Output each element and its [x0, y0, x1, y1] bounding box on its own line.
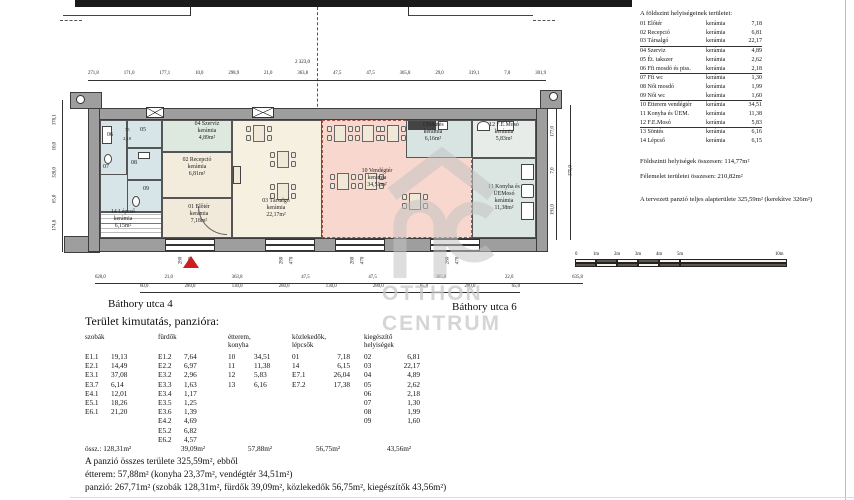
wall-left: [88, 108, 100, 252]
scale-bar: 0 1m 2m 3m 4m 5m 10m: [575, 252, 787, 270]
table-and-chairs: [270, 150, 296, 170]
dim-line-left: [62, 100, 63, 252]
area-table-row: E4.112,01 E3.41,17 062,18: [85, 389, 434, 398]
center-axis-line: [317, 7, 318, 122]
legend-panel: A földszint helyiségeinek területei: 01 …: [640, 10, 846, 203]
label-tarsalgo: 03 Társalgókerámia22,17m²: [247, 198, 305, 219]
table-and-chairs: [327, 124, 353, 144]
totals-label: össz.:: [85, 444, 101, 453]
table-and-chairs: [246, 124, 272, 144]
col-header-etterem: étterem,konyha: [228, 333, 292, 349]
table-and-chairs: [380, 124, 406, 144]
window-dim-470: 470: [360, 250, 367, 272]
reference-dash-right: [533, 20, 555, 21]
door-dim-width: 75: [125, 127, 130, 132]
sheet-frame-right: [845, 0, 846, 500]
legend-rows: 01 Előtér kerámia 7,18 02 Recepció kerám…: [640, 20, 762, 146]
scale-label: 1m: [593, 252, 599, 257]
window-dim-470: 470: [455, 250, 462, 272]
room-05-et-takszer: [127, 120, 162, 148]
area-table-row: E5.26,82: [85, 426, 434, 435]
label-eloter: 01 Előtérkerámia7,18m²: [170, 204, 228, 225]
neighbor-step-drop-right: [408, 7, 409, 16]
legend-row: 09 Női wc kerámia 1,60: [640, 92, 762, 102]
dim-total-top: 2 323,0: [295, 60, 310, 65]
dim-row-bottom-1: 620,021,0363,847,547,5365,822,0635,8: [95, 275, 583, 280]
area-table-row: E2.114,49 E2.26,97 1111,38 146,15 0322,1…: [85, 361, 434, 370]
legend-summary-mezzanine: Félemelet területei összesen: 210,82m²: [640, 173, 846, 180]
col-header-szobak: szobák: [85, 333, 158, 349]
col-header-kiegeszito: kiegészítőhelyiségek: [364, 333, 434, 349]
neighbor-step-line-right: [408, 15, 533, 16]
closet-x-symbol: [146, 107, 164, 118]
legend-row: 10 Étterem vendégtér kerámia 34,51: [640, 101, 762, 110]
label-szerviz: 04 Szervizkerámia4,89m²: [184, 121, 230, 142]
legend-row: 06 Ffi mosdó és piss. kerámia 2,18: [640, 65, 762, 75]
scale-label: 5m: [677, 252, 683, 257]
legend-row: 11 Konyha és ÜEM. kerámia 11,38: [640, 110, 762, 119]
window-dim-280: 280: [279, 250, 286, 272]
label-lepcso: 14 Lépcsőkerámia6,15m²: [99, 209, 147, 230]
column-symbol-left: [76, 95, 85, 104]
side-table: [233, 166, 241, 184]
window-dim-280: 280: [350, 250, 357, 272]
street-label-right: Báthory utca 6: [452, 301, 517, 313]
dim-row-top: 271,8171,0177,110,0298,921,0363,847,547,…: [88, 71, 546, 76]
area-table-rows: E1.119,13 E1.27,64 1034,51 017,18 026,81…: [85, 352, 434, 444]
window-dim-470: 470: [289, 250, 296, 272]
label-vendegter: 10 Vendégtérkerámia34,51m²: [348, 168, 406, 189]
dim-right-outer-value: 375,0: [569, 131, 574, 211]
scale-label: 3m: [635, 252, 641, 257]
legend-title: A földszint helyiségeinek területei:: [640, 10, 846, 17]
legend-row: 03 Társalgó kerámia 22,17: [640, 37, 762, 47]
table-and-chairs: [355, 124, 381, 144]
area-table-row: E3.137,08 E3.22,96 125,83 E7.126,04 044,…: [85, 370, 434, 379]
area-table-row: E6.121,20 E3.61,39 081,99: [85, 407, 434, 416]
dim-row-left: 174,865,0328,010,0378,1: [53, 98, 58, 248]
entrance-triangle-marker: [183, 256, 199, 268]
room-number-06: 06: [107, 132, 113, 138]
legend-row: 01 Előtér kerámia 7,18: [640, 20, 762, 29]
area-table-row: E1.119,13 E1.27,64 1034,51 017,18 026,81: [85, 352, 434, 361]
legend-row: 08 Női mosdó kerámia 1,99: [640, 83, 762, 92]
scale-label: 2m: [614, 252, 620, 257]
street-label-left: Báthory utca 4: [108, 298, 173, 310]
washbasin: [138, 152, 150, 159]
area-table-row: E3.76,14 E3.31,63 136,16 E7.217,38 052,6…: [85, 380, 434, 389]
room-number-07: 07: [103, 164, 109, 170]
toilet: [132, 196, 140, 207]
legend-row: 02 Recepció kerámia 6,81: [640, 29, 762, 38]
neighbor-building-outline: [75, 0, 632, 7]
dim-line-right-inner: [556, 105, 557, 240]
legend-row: 04 Szerviz kerámia 4,89: [640, 47, 762, 56]
scale-strip-bottom: [575, 263, 787, 267]
col-header-kozlekedok: közlekedők,lépcsők: [292, 333, 364, 349]
window-dim-280: 280: [445, 250, 452, 272]
room-number-09: 09: [143, 186, 149, 192]
neighbor-step-line-left: [63, 15, 190, 16]
summary-line-total: A panzió összes területe 325,59m², ebből: [85, 456, 446, 469]
legend-row: 05 Ét. takszer kerámia 2,62: [640, 56, 762, 65]
legend-summary-total: A tervezett panzió teljes alapterülete 3…: [640, 196, 846, 203]
area-table-row: E5.118,26 E3.51,25 071,30: [85, 398, 434, 407]
reference-dash-left: [60, 20, 82, 21]
kitchen-counter: [521, 164, 534, 180]
label-recepcio: 02 Recepciókerámia6,81m²: [168, 157, 226, 178]
area-table-row: E6.24,57: [85, 435, 434, 444]
col-header-furdok: fürdők: [158, 333, 228, 349]
room-09-noi-wc: [127, 180, 162, 212]
area-table-headers: szobák fürdők étterem,konyha közlekedők,…: [85, 333, 434, 349]
room-number-05: 05: [140, 127, 146, 133]
legend-summary-ground: Földszinti helyiségek összesen: 114,77m²: [640, 158, 846, 165]
scale-label: 0: [575, 252, 577, 257]
legend-row: 14 Lépcső kerámia 6,15: [640, 137, 762, 146]
dim-row-right: 191,07,0177,0: [551, 96, 556, 246]
label-sontes: 13Söntéskerámia6,16m²: [407, 122, 459, 143]
door-dim-height: 2,10: [123, 136, 131, 141]
column-symbol-right: [549, 92, 558, 101]
summary-line-etterem: étterem: 57,88m² (konyha 23,37m², vendég…: [85, 469, 446, 482]
scale-label: 4m: [656, 252, 662, 257]
summary-line-panzio: panzió: 267,71m² (szobák 128,31m², fürdő…: [85, 482, 446, 495]
toilet: [104, 154, 112, 164]
area-table-title: Terület kimutatás, panzióra:: [85, 314, 219, 329]
area-summary-text: A panzió összes területe 325,59m², ebből…: [85, 456, 446, 495]
legend-row: 13 Söntés kerámia 6,16: [640, 128, 762, 137]
dim-line-top: [88, 80, 546, 81]
sheet-frame-bottom: [70, 497, 854, 498]
wall-right: [536, 108, 548, 252]
area-table-row: E4.24,69 091,60: [85, 416, 434, 425]
wall-bump-top-left: [70, 92, 102, 109]
closet-x-symbol: [252, 107, 274, 118]
area-table-totals: össz.: 128,31m² 39,09m² 57,88m² 56,75m² …: [85, 444, 434, 453]
floor-plan-sheet: { "plan": { "room_labels": [ {"id":"elot…: [0, 0, 854, 500]
scale-label: 10m: [775, 252, 784, 257]
label-konyha: 11 Konyha ésÜEMosókerámia11,38m²: [476, 184, 532, 212]
table-and-chairs: [402, 192, 428, 212]
dim-line-bottom-2: [140, 292, 520, 293]
legend-row: 12 F.E.Mosó kerámia 5,83: [640, 119, 762, 129]
neighbor-step-drop-left: [190, 7, 191, 16]
room-number-08: 08: [131, 160, 137, 166]
label-femoso: 12 F.E.Mosókerámia5,83m²: [474, 122, 534, 143]
dim-row-bottom-2: 60,0280,0130,0280,0130,0280,065,0280,065…: [140, 284, 520, 289]
legend-row: 07 Ffi wc kerámia 1,30: [640, 74, 762, 83]
